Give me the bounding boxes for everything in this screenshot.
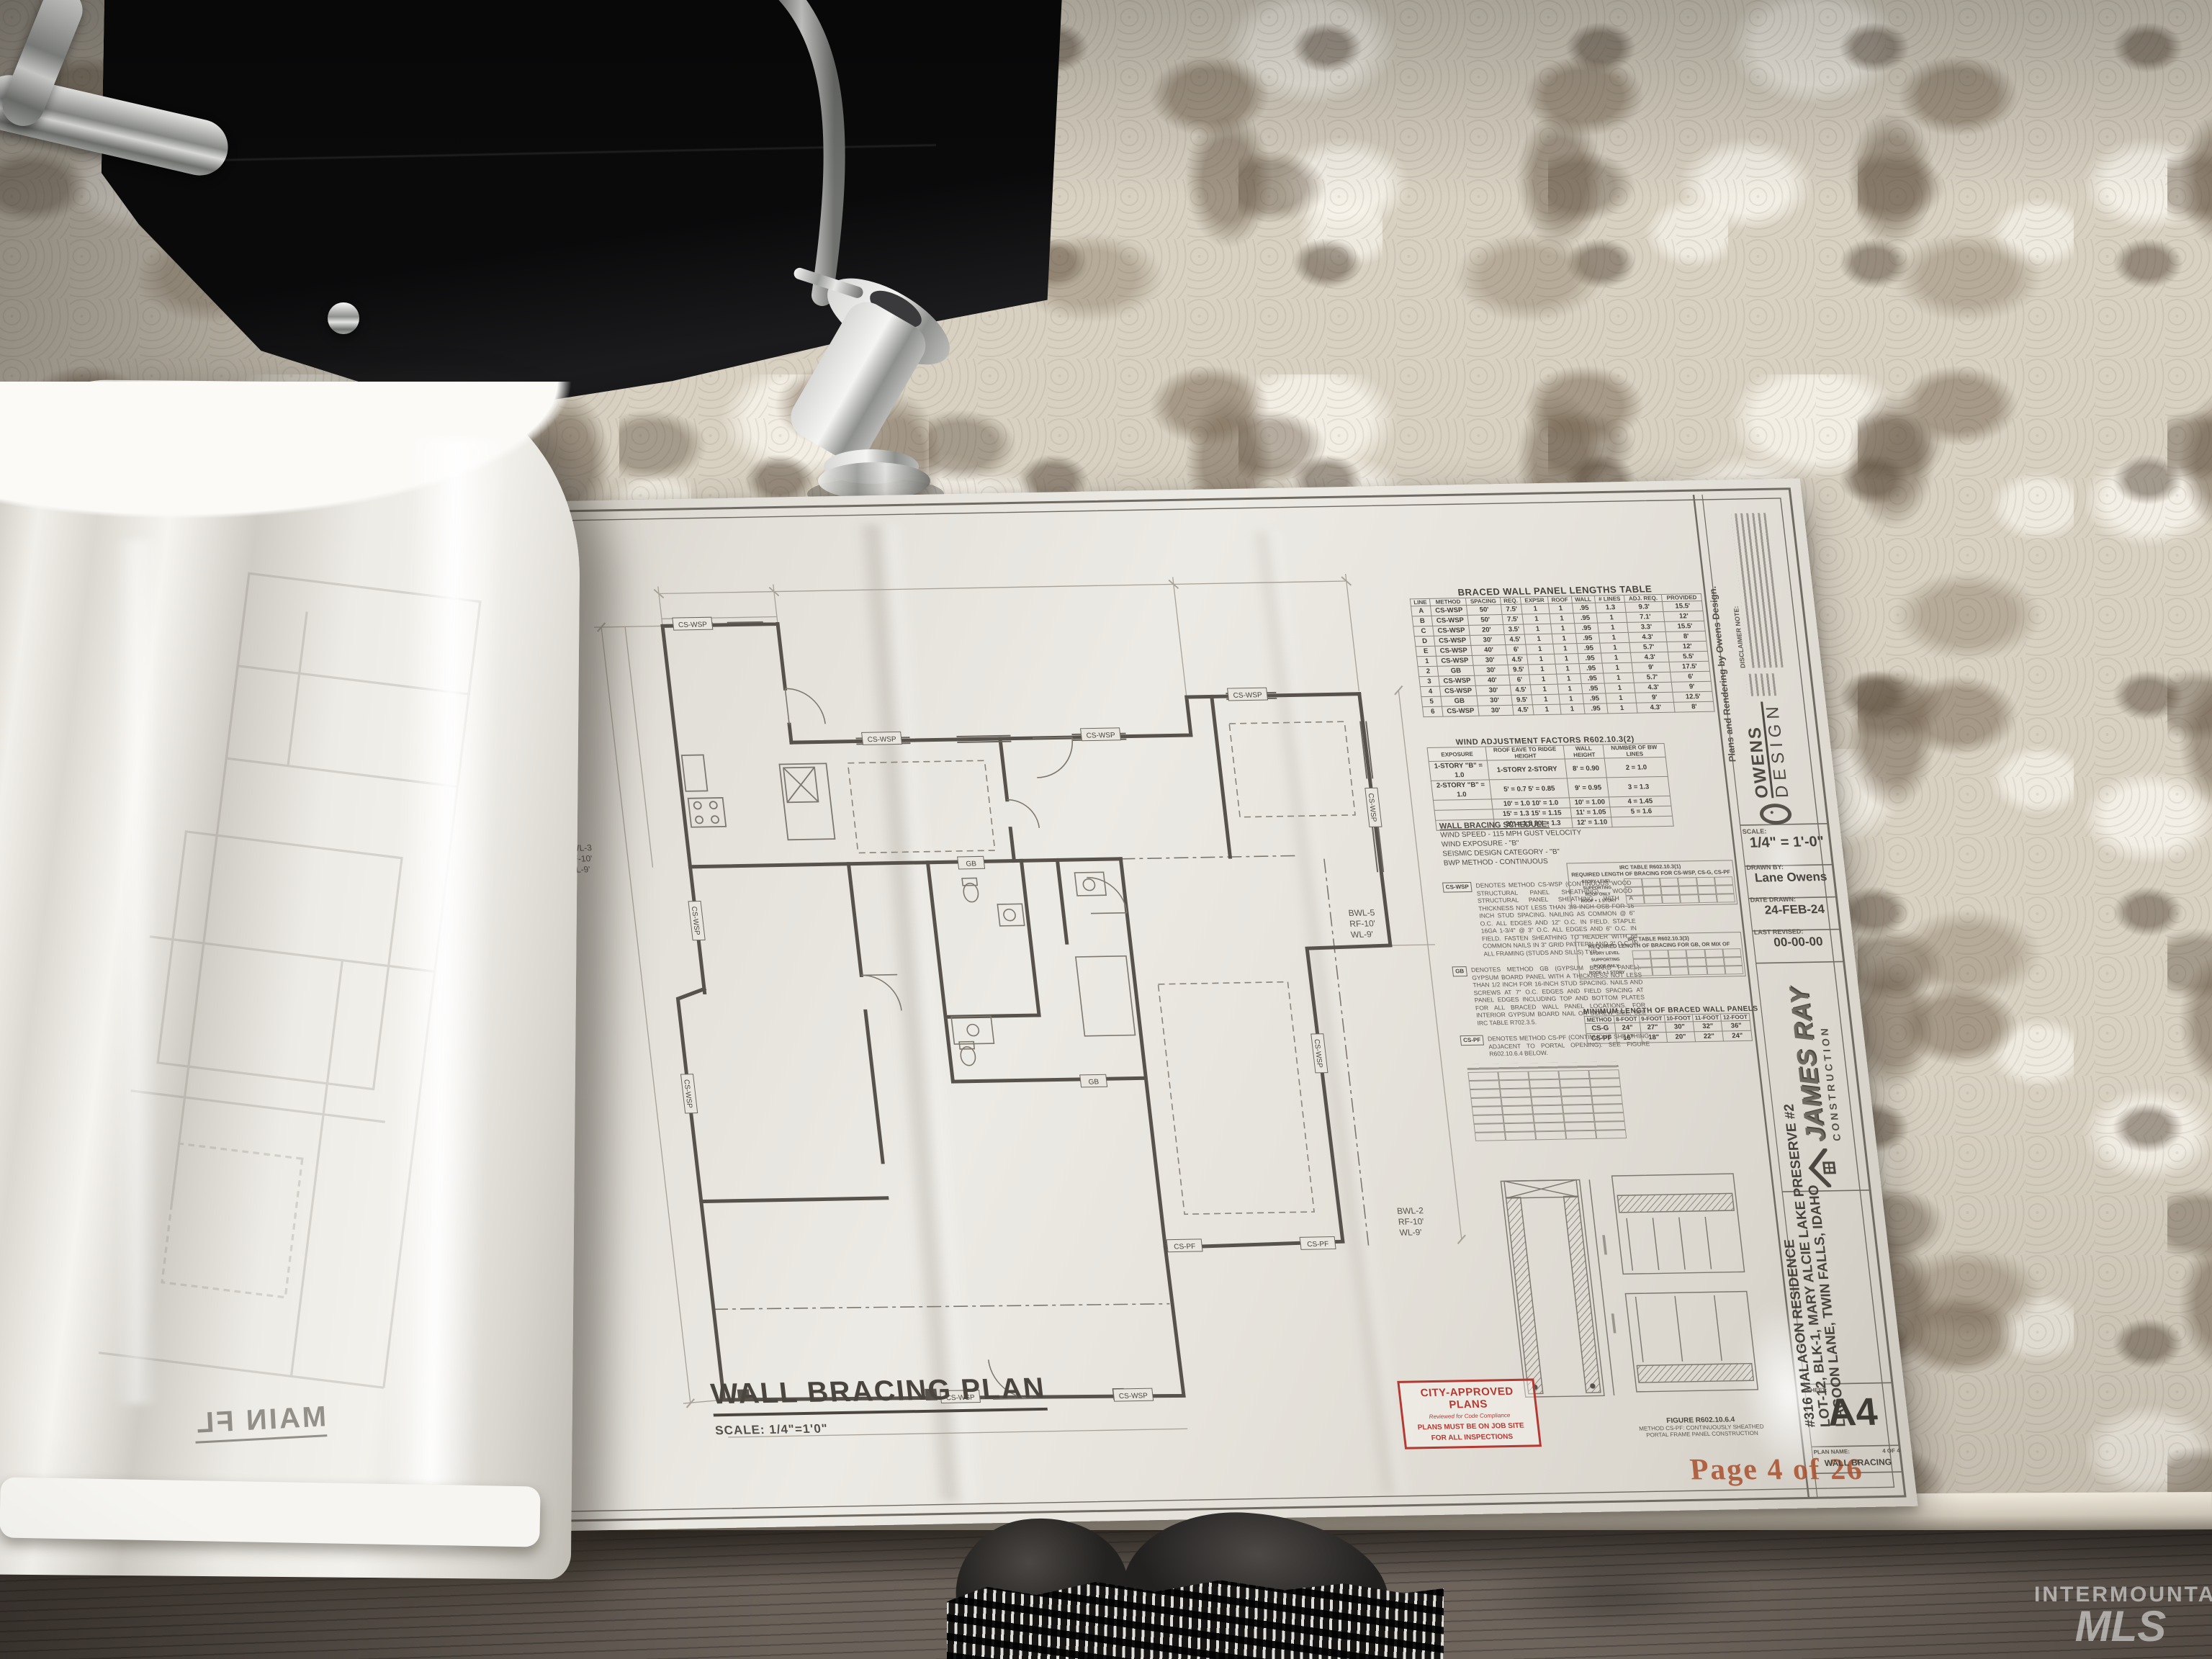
irc-table-2: IRC TABLE R602.10.3(3) REQUIRED LENGTH O… [1575, 932, 1746, 979]
blueprint-sheet: CS-WSP CS-WSP CS-WSP CS-WSP CS-WSP CS-WS… [403, 478, 1918, 1532]
plan-name-label: PLAN NAME: [1813, 1448, 1850, 1455]
photo-stage: CS-WSP CS-WSP CS-WSP CS-WSP CS-WSP CS-WS… [0, 0, 2212, 1659]
field-value: 00-00-00 [1754, 935, 1842, 950]
braced-wall-table: LINEMETHODSPACINGREQ.EXPSRROOFWALL# LINE… [1410, 593, 1715, 717]
stamp-line: Reviewed for Code Compliance [1406, 1411, 1534, 1420]
dashed-rects [844, 721, 1401, 1219]
wind-adjustment-table: EXPOSUREROOF EAVE TO RIDGE HEIGHTWALL HE… [1426, 743, 1673, 831]
svg-text:WL-9': WL-9' [1399, 1227, 1423, 1238]
walls [635, 613, 1442, 1404]
stamp-line: PLANS MUST BE ON JOB SITE [1407, 1421, 1534, 1431]
figure-caption: FIGURE R602.10.6.4 METHOD CS-PF: CONTINU… [1623, 1415, 1780, 1439]
person-shadow [1426, 1541, 1800, 1649]
door-swings [785, 683, 1182, 1401]
svg-text:CS-WSP: CS-WSP [867, 736, 897, 745]
field-value: Lane Owens [1747, 870, 1835, 886]
irc1-row: ROOF + 1 STORY [1573, 898, 1625, 905]
city-approval-stamp: CITY-APPROVED PLANS Reviewed for Code Co… [1397, 1378, 1542, 1449]
plan-name-cell: PLAN NAME: 4 OF 4 WALL BRACING [1813, 1447, 1902, 1468]
svg-text:CS-WSP: CS-WSP [1118, 1392, 1148, 1401]
plan-name: WALL BRACING [1815, 1457, 1902, 1468]
faucet-base [724, 241, 963, 479]
irc2-grid [1632, 948, 1743, 976]
roll-bottom-edge [0, 1477, 541, 1547]
svg-text:BWL-5: BWL-5 [1348, 907, 1376, 918]
note-tag: CS-WSP [1442, 882, 1473, 893]
braced-table-block: BRACED WALL PANEL LENGTHS TABLE LINEMETH… [1408, 583, 1715, 717]
person-legs [922, 1505, 1469, 1659]
irc2-row: ROOF + 1 STORY [1581, 970, 1633, 977]
min-length-table-block: MINIMUM LENGTH OF BRACED WALL PANELS MET… [1583, 1005, 1753, 1044]
irc-table-1: IRC TABLE R602.10.3(1) REQUIRED LENGTH O… [1566, 860, 1737, 907]
svg-text:RF-10': RF-10' [1398, 1216, 1424, 1227]
field-value: 24-FEB-24 [1750, 902, 1838, 918]
floor-plan-drawing: CS-WSP CS-WSP CS-WSP CS-WSP CS-WSP CS-WS… [427, 504, 1520, 1449]
svg-text:CS-WSP: CS-WSP [678, 621, 708, 629]
note-tag: CS-PF [1460, 1035, 1484, 1046]
rolled-blueprint-pages: MAIN FL [0, 382, 576, 1577]
mls-watermark: INTERMOUNTAIN MLS [2034, 1583, 2207, 1646]
kitchen-fixtures [682, 752, 835, 841]
stamp-line: CITY-APPROVED PLANS [1403, 1385, 1532, 1412]
stamp-line: FOR ALL INSPECTIONS [1408, 1432, 1536, 1442]
svg-text:CS-WSP: CS-WSP [1233, 691, 1263, 700]
titleblock-fields: SCALE: 1/4" = 1'-0" DRAWN BY: Lane Owens… [1742, 827, 1843, 961]
spec-table-placeholder [1467, 1061, 1627, 1141]
mirrored-sheet-title: MAIN FL [194, 1401, 328, 1444]
svg-text:BWL-2: BWL-2 [1396, 1205, 1424, 1216]
field-value: 1/4" = 1'-0" [1743, 834, 1831, 852]
min-length-table: METHOD8-FOOT9-FOOT10-FOOT11-FOOT12-FOOTC… [1584, 1013, 1753, 1044]
irc1-grid [1624, 876, 1735, 904]
dimension-lines [590, 573, 1492, 1449]
sheet-number: A4 [1807, 1392, 1897, 1432]
owens-contact-lines [1745, 673, 1776, 696]
irc2-col-label: STORY LEVEL SUPPORTING [1578, 950, 1632, 964]
wind-table-block: WIND ADJUSTMENT FACTORS R602.10.3(2) EXP… [1426, 734, 1674, 831]
pages-label: 4 OF 4 [1882, 1447, 1900, 1454]
owens-logo-icon [1758, 804, 1792, 825]
faucet-arc [752, 0, 835, 295]
filter-faucet [634, 0, 1037, 562]
svg-text:RF-10': RF-10' [1349, 918, 1376, 929]
sink-knob [328, 302, 359, 334]
roll-glare-streak-2 [115, 540, 158, 1404]
watermark-mls: MLS [2034, 1607, 2207, 1646]
note-tag: GB [1452, 966, 1467, 976]
sheet-number-cell: SHEET: A4 [1806, 1385, 1897, 1432]
spec-grid [1467, 1069, 1627, 1141]
svg-text:GB: GB [1088, 1078, 1100, 1086]
svg-text:GB: GB [966, 860, 977, 868]
plan-heading: WALL BRACING PLAN SCALE: 1/4"=1'0" [709, 1372, 1051, 1438]
svg-text:CS-PF: CS-PF [1307, 1241, 1329, 1249]
svg-text:CS-PF: CS-PF [1174, 1243, 1196, 1251]
bracing-schedule: WALL BRACING SCHEDULE: WIND SPEED - 115 … [1439, 819, 1631, 868]
irc1-col-label: STORY LEVEL SUPPORTING [1570, 878, 1624, 892]
plan-title: WALL BRACING PLAN [709, 1372, 1048, 1416]
svg-text:CS-WSP: CS-WSP [1086, 732, 1116, 740]
svg-text:WL-9': WL-9' [1350, 929, 1374, 940]
bath-fixtures [935, 872, 1138, 1066]
